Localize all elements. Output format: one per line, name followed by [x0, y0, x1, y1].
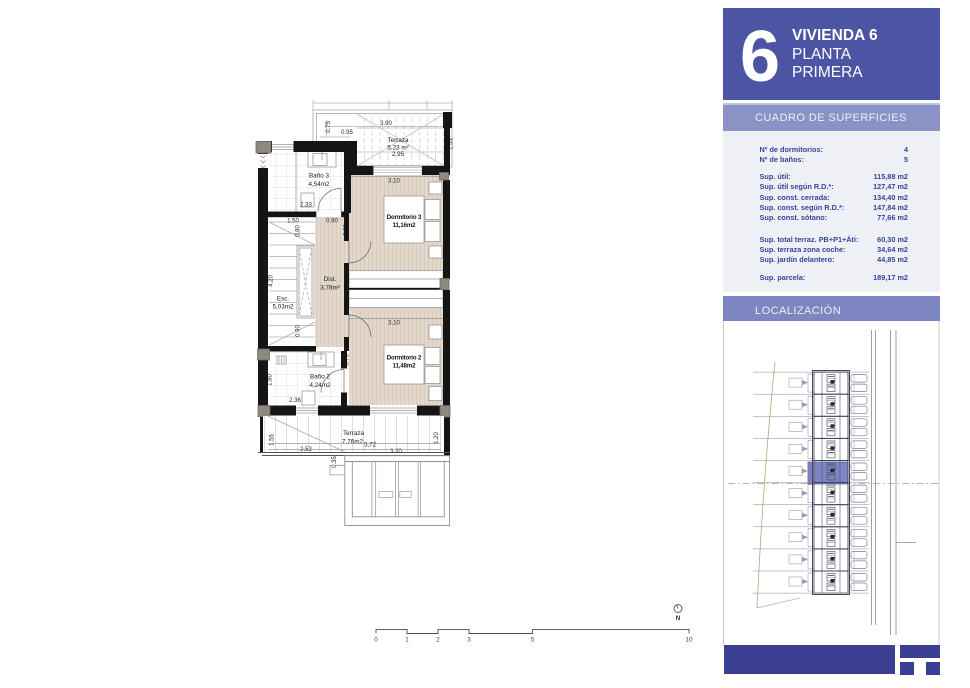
svg-text:1.20: 1.20	[434, 432, 440, 444]
svg-text:3.90: 3.90	[380, 121, 392, 127]
svg-text:2.33: 2.33	[300, 203, 312, 209]
svg-text:0: 0	[374, 637, 378, 644]
svg-text:Dormitorio 2: Dormitorio 2	[387, 355, 422, 362]
svg-text:1.50: 1.50	[287, 219, 299, 225]
svg-text:4,24m2: 4,24m2	[309, 382, 331, 389]
svg-text:7,76m2: 7,76m2	[342, 439, 364, 446]
svg-text:Baño 3: Baño 3	[309, 173, 329, 180]
svg-text:Dormitorio 3: Dormitorio 3	[387, 214, 422, 221]
svg-text:1: 1	[405, 637, 409, 644]
svg-text:10: 10	[685, 637, 693, 644]
svg-text:5: 5	[531, 637, 535, 644]
svg-text:0.95: 0.95	[341, 130, 353, 136]
svg-text:4,54m2: 4,54m2	[308, 181, 330, 188]
svg-text:11,16m2: 11,16m2	[393, 222, 416, 229]
svg-text:0.90: 0.90	[326, 219, 338, 225]
svg-text:Dist.: Dist.	[324, 276, 337, 283]
svg-text:3.10: 3.10	[388, 321, 400, 327]
svg-text:3.10: 3.10	[388, 179, 400, 185]
svg-text:5,72: 5,72	[364, 442, 377, 449]
svg-text:Esc.: Esc.	[277, 296, 289, 303]
svg-text:2.95: 2.95	[392, 151, 405, 158]
svg-text:N: N	[676, 615, 681, 622]
svg-text:1.55: 1.55	[270, 434, 276, 446]
svg-text:4.20: 4.20	[269, 275, 275, 287]
svg-text:2.36: 2.36	[289, 398, 301, 404]
svg-text:0.75: 0.75	[326, 121, 332, 133]
svg-text:0.90: 0.90	[296, 325, 302, 337]
svg-text:Terraza: Terraza	[343, 430, 364, 437]
svg-text:0.35: 0.35	[332, 456, 338, 468]
svg-text:1.80: 1.80	[268, 374, 274, 386]
svg-text:5,03m2: 5,03m2	[272, 304, 294, 311]
svg-text:0.80: 0.80	[296, 225, 302, 237]
svg-text:Terraza: Terraza	[388, 137, 409, 144]
svg-text:2.53: 2.53	[300, 447, 312, 453]
svg-text:2: 2	[436, 637, 440, 644]
svg-text:11,48m2: 11,48m2	[393, 363, 416, 370]
svg-text:3.20: 3.20	[390, 449, 402, 455]
svg-text:3,78m²: 3,78m²	[320, 285, 340, 292]
svg-text:3: 3	[467, 637, 471, 644]
